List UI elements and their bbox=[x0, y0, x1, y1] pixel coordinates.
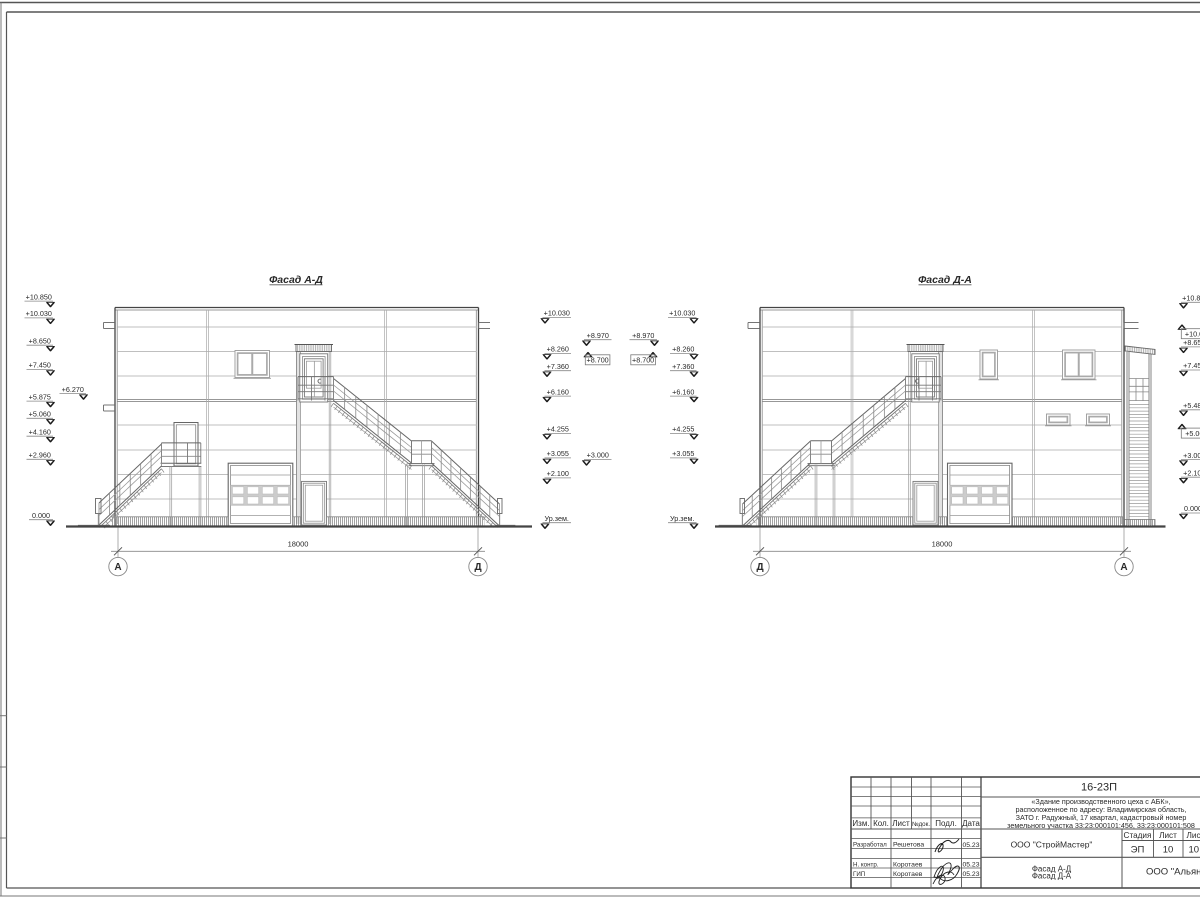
svg-text:Фасад А-Д: Фасад А-Д bbox=[269, 274, 323, 286]
svg-text:Лист: Лист bbox=[892, 819, 910, 828]
svg-text:+2.960: +2.960 bbox=[29, 451, 51, 460]
svg-text:земельного участка 33:23:00010: земельного участка 33:23:000101:456, 33:… bbox=[1007, 821, 1195, 830]
svg-text:Изм.: Изм. bbox=[852, 819, 869, 828]
svg-text:+10.030: +10.030 bbox=[544, 309, 570, 318]
svg-text:Д: Д bbox=[474, 562, 481, 573]
svg-text:Н. контр.: Н. контр. bbox=[853, 861, 879, 868]
svg-text:+3.055: +3.055 bbox=[672, 449, 694, 458]
svg-text:+3.000: +3.000 bbox=[1183, 451, 1200, 460]
svg-text:+8.700: +8.700 bbox=[587, 356, 609, 365]
svg-text:+10.850: +10.850 bbox=[1182, 294, 1200, 303]
svg-text:+6.160: +6.160 bbox=[672, 387, 694, 396]
svg-text:А: А bbox=[1120, 562, 1127, 573]
svg-text:Кол.: Кол. bbox=[873, 819, 889, 828]
svg-text:10: 10 bbox=[1189, 845, 1200, 856]
svg-text:Фасад Д-А: Фасад Д-А bbox=[1032, 872, 1072, 881]
svg-text:ООО "Альянс": ООО "Альянс" bbox=[1146, 866, 1200, 877]
svg-text:+3.000: +3.000 bbox=[587, 451, 609, 460]
svg-text:+8.650: +8.650 bbox=[29, 336, 51, 345]
svg-text:Подл.: Подл. bbox=[935, 819, 957, 828]
svg-text:Ур.зем.: Ур.зем. bbox=[545, 514, 569, 523]
svg-text:Лист: Лист bbox=[1159, 831, 1177, 840]
svg-text:+10.850: +10.850 bbox=[26, 292, 52, 301]
svg-text:+7.360: +7.360 bbox=[547, 362, 569, 371]
svg-text:А: А bbox=[114, 562, 121, 573]
svg-text:Д: Д bbox=[756, 562, 763, 573]
svg-text:+8.970: +8.970 bbox=[587, 331, 609, 340]
svg-text:+5.875: +5.875 bbox=[29, 392, 51, 401]
svg-text:Коротаев: Коротаев bbox=[893, 871, 923, 878]
svg-text:+8.260: +8.260 bbox=[672, 345, 694, 354]
svg-text:Разработал: Разработал bbox=[853, 842, 887, 849]
svg-text:Листов: Листов bbox=[1187, 831, 1200, 840]
svg-text:ГИП: ГИП bbox=[853, 871, 865, 878]
svg-text:Дата: Дата bbox=[962, 819, 980, 828]
svg-text:Коротаев: Коротаев bbox=[893, 861, 923, 868]
svg-text:18000: 18000 bbox=[288, 540, 309, 549]
svg-text:+3.055: +3.055 bbox=[547, 449, 569, 458]
svg-text:Фасад Д-А: Фасад Д-А bbox=[918, 274, 972, 286]
svg-text:+4.255: +4.255 bbox=[672, 425, 694, 434]
svg-text:+7.450: +7.450 bbox=[1183, 361, 1200, 370]
svg-text:+2.100: +2.100 bbox=[547, 469, 569, 478]
svg-text:0.000: 0.000 bbox=[32, 511, 50, 520]
svg-text:ООО "СтройМастер": ООО "СтройМастер" bbox=[1011, 840, 1093, 850]
svg-text:+5.060: +5.060 bbox=[29, 410, 51, 419]
svg-text:+10.030: +10.030 bbox=[669, 309, 695, 318]
svg-text:05.23: 05.23 bbox=[962, 842, 979, 849]
svg-text:10: 10 bbox=[1163, 845, 1174, 856]
svg-text:+7.450: +7.450 bbox=[29, 361, 51, 370]
svg-text:+8.650: +8.650 bbox=[1183, 338, 1200, 347]
svg-text:+2.100: +2.100 bbox=[1183, 468, 1200, 477]
svg-text:+7.360: +7.360 bbox=[672, 362, 694, 371]
svg-text:+8.970: +8.970 bbox=[632, 331, 654, 340]
svg-text:+6.160: +6.160 bbox=[547, 387, 569, 396]
svg-text:Решетова: Решетова bbox=[893, 842, 924, 849]
svg-text:0.000: 0.000 bbox=[1184, 504, 1200, 513]
svg-text:+5.060: +5.060 bbox=[1185, 429, 1200, 438]
svg-text:Ур.зем.: Ур.зем. bbox=[670, 514, 694, 523]
svg-text:№док.: №док. bbox=[912, 821, 930, 828]
svg-text:+4.160: +4.160 bbox=[29, 427, 51, 436]
svg-text:+6.270: +6.270 bbox=[62, 385, 84, 394]
svg-text:16-23П: 16-23П bbox=[1081, 782, 1117, 794]
svg-text:+8.700: +8.700 bbox=[632, 356, 654, 365]
svg-text:05.23: 05.23 bbox=[962, 871, 979, 878]
svg-text:Стадия: Стадия bbox=[1124, 831, 1152, 840]
svg-text:+8.260: +8.260 bbox=[547, 345, 569, 354]
svg-text:05.23: 05.23 bbox=[962, 862, 979, 869]
svg-text:+5.485: +5.485 bbox=[1183, 401, 1200, 410]
svg-text:18000: 18000 bbox=[932, 540, 953, 549]
svg-text:+4.255: +4.255 bbox=[547, 425, 569, 434]
svg-text:ЭП: ЭП bbox=[1131, 845, 1145, 856]
svg-text:+10.030: +10.030 bbox=[26, 309, 52, 318]
